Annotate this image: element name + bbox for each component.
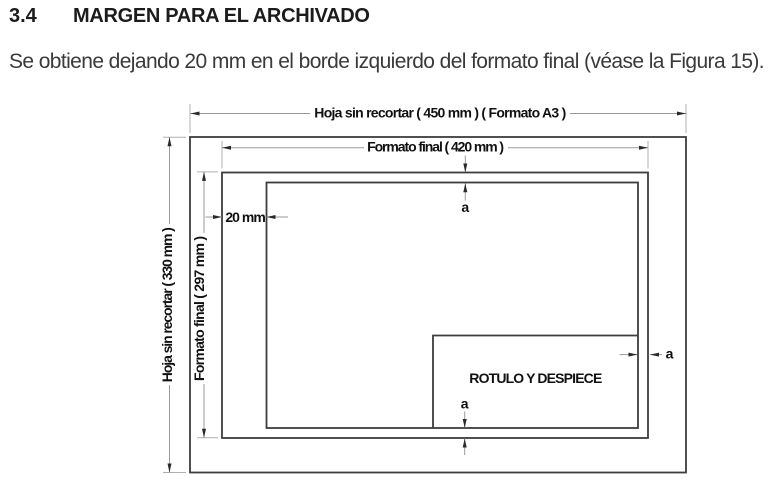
- svg-text:Formato final ( 420 mm ): Formato final ( 420 mm ): [367, 138, 504, 154]
- svg-text:Formato final ( 297 mm ): Formato final ( 297 mm ): [191, 236, 207, 381]
- svg-text:ROTULO Y DESPIECE: ROTULO Y DESPIECE: [469, 370, 602, 386]
- svg-text:20 mm: 20 mm: [225, 209, 266, 225]
- svg-text:a: a: [666, 346, 674, 362]
- svg-text:a: a: [461, 199, 469, 215]
- svg-text:Hoja sin recortar ( 450 mm ) (: Hoja sin recortar ( 450 mm ) ( Formato A…: [314, 105, 566, 121]
- svg-text:a: a: [461, 396, 469, 412]
- svg-text:Hoja sin recortar ( 330 mm ): Hoja sin recortar ( 330 mm ): [159, 227, 175, 382]
